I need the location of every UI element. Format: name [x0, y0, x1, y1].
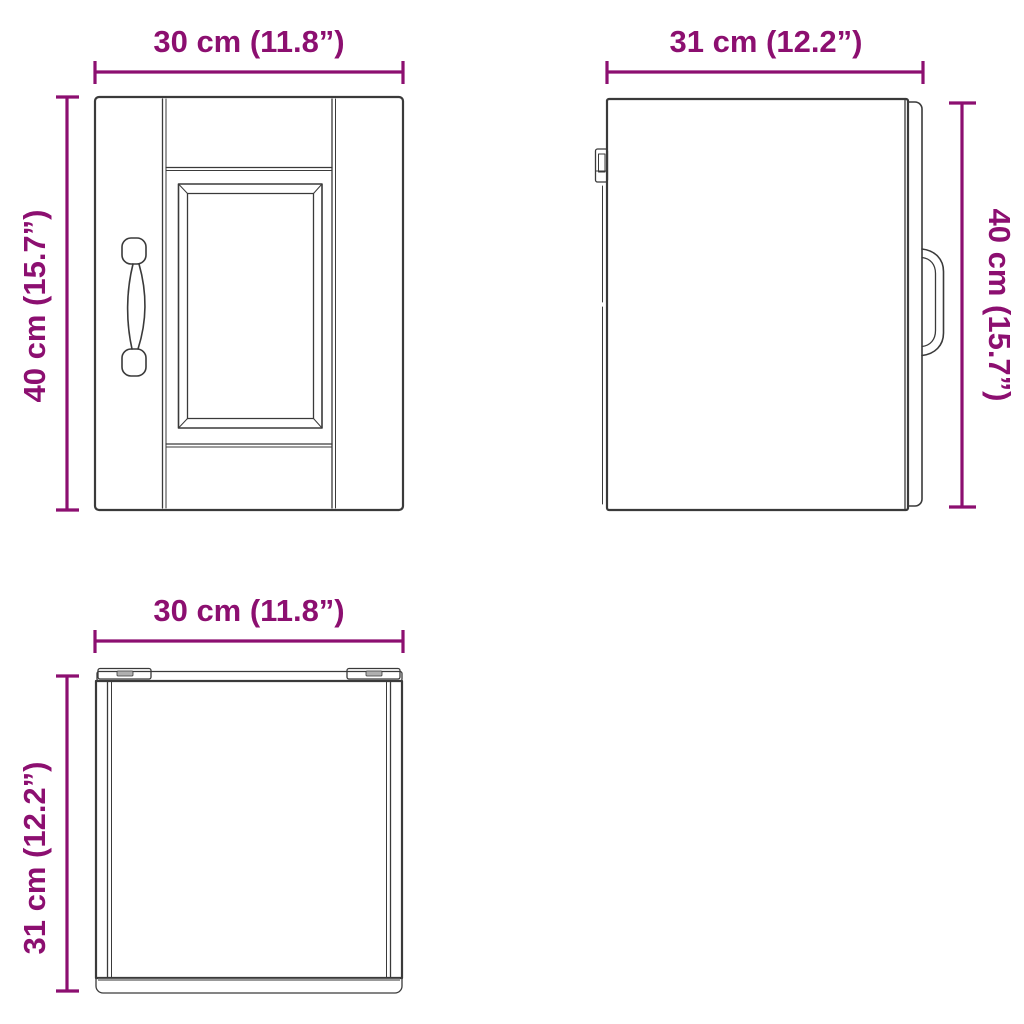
front-height-label: 40 cm (15.7”): [17, 210, 52, 403]
front-width-label: 30 cm (11.8”): [153, 24, 344, 59]
handle-bar-right-edge: [138, 264, 145, 349]
right-hinge-tab: [366, 671, 382, 676]
side-handle-inner-edge: [922, 258, 936, 347]
front-door-rails: [166, 168, 332, 448]
dimension-diagram-canvas: 30 cm (11.8”) 40 cm (15.7”): [0, 0, 1024, 1024]
front-height-dimension: 40 cm (15.7”): [17, 97, 79, 510]
top-depth-label: 31 cm (12.2”): [17, 762, 52, 955]
side-handle: [922, 249, 944, 356]
left-hinge-tab: [117, 671, 133, 676]
wall-mount-bracket: [596, 149, 608, 182]
handle-top-plate: [122, 238, 146, 264]
top-body-drawing: [96, 669, 402, 994]
top-view: 30 cm (11.8”) 31 cm (12.2”): [17, 593, 403, 993]
side-width-dimension: 31 cm (12.2”): [607, 24, 923, 84]
front-door-handle: [122, 238, 146, 376]
side-body-outline: [607, 99, 908, 510]
top-depth-dimension: 31 cm (12.2”): [17, 676, 79, 991]
handle-bottom-plate: [122, 349, 146, 376]
cabinet-dimension-diagram: 30 cm (11.8”) 40 cm (15.7”): [0, 0, 1024, 1024]
left-hinge-plate: [98, 669, 151, 680]
side-handle-outer-edge: [922, 249, 944, 356]
handle-bar-left-edge: [128, 264, 133, 349]
front-door-outline: [95, 97, 403, 510]
side-height-dimension: 40 cm (15.7”): [949, 103, 1017, 507]
top-width-label: 30 cm (11.8”): [153, 593, 344, 628]
top-side-panels: [108, 681, 391, 978]
right-hinge-plate: [347, 669, 400, 680]
side-view: 31 cm (12.2”) 40 cm (15.7”): [596, 24, 1018, 510]
panel-inner-frame: [188, 194, 314, 419]
top-body-outline: [96, 681, 402, 978]
bracket-slot: [599, 154, 606, 172]
front-door-panel: [179, 184, 323, 428]
side-width-label: 31 cm (12.2”): [670, 24, 863, 59]
panel-outer-frame: [179, 184, 323, 428]
front-door-drawing: [95, 97, 403, 510]
front-width-dimension: 30 cm (11.8”): [95, 24, 403, 84]
side-door-edge: [908, 102, 922, 506]
side-body-drawing: [596, 99, 944, 510]
side-height-label: 40 cm (15.7”): [982, 209, 1017, 402]
front-view: 30 cm (11.8”) 40 cm (15.7”): [17, 24, 403, 510]
top-width-dimension: 30 cm (11.8”): [95, 593, 403, 653]
